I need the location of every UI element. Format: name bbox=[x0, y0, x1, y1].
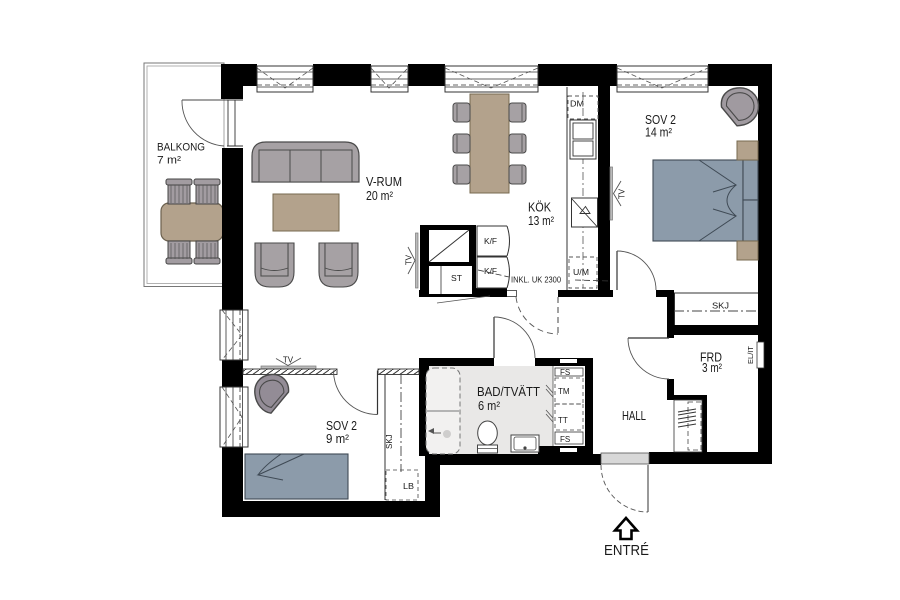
svg-text:TT: TT bbox=[558, 416, 568, 425]
svg-text:TV: TV bbox=[405, 254, 414, 265]
svg-text:3 m²: 3 m² bbox=[702, 361, 722, 375]
svg-text:ST: ST bbox=[451, 274, 462, 283]
svg-text:U/M: U/M bbox=[573, 268, 589, 277]
svg-text:FS: FS bbox=[560, 368, 570, 377]
svg-text:FS: FS bbox=[560, 435, 570, 444]
svg-text:SOV 2: SOV 2 bbox=[326, 419, 357, 433]
svg-text:BALKONG: BALKONG bbox=[157, 142, 205, 154]
svg-text:K/F: K/F bbox=[484, 237, 497, 246]
svg-text:20 m²: 20 m² bbox=[366, 189, 393, 203]
svg-text:KÖK: KÖK bbox=[528, 201, 552, 215]
svg-text:DM: DM bbox=[570, 100, 584, 109]
svg-text:INKL. UK 2300: INKL. UK 2300 bbox=[511, 276, 562, 285]
svg-text:SKJ: SKJ bbox=[712, 302, 729, 311]
svg-text:TV: TV bbox=[618, 188, 627, 199]
svg-text:14 m²: 14 m² bbox=[645, 126, 672, 140]
svg-text:BAD/TVÄTT: BAD/TVÄTT bbox=[477, 385, 540, 399]
svg-text:ENTRÉ: ENTRÉ bbox=[604, 542, 649, 559]
svg-text:LB: LB bbox=[403, 482, 414, 491]
svg-text:TV: TV bbox=[283, 356, 294, 365]
svg-text:6 m²: 6 m² bbox=[478, 399, 500, 413]
svg-text:SKJ: SKJ bbox=[385, 434, 394, 449]
svg-text:7 m²: 7 m² bbox=[157, 155, 181, 167]
svg-text:HALL: HALL bbox=[622, 409, 646, 423]
svg-text:TM: TM bbox=[558, 387, 570, 396]
svg-text:13 m²: 13 m² bbox=[528, 214, 554, 228]
svg-text:EL/IT: EL/IT bbox=[746, 346, 755, 364]
svg-text:V-RUM: V-RUM bbox=[366, 175, 402, 189]
svg-text:9 m²: 9 m² bbox=[326, 432, 349, 446]
svg-text:K/F: K/F bbox=[484, 267, 497, 276]
